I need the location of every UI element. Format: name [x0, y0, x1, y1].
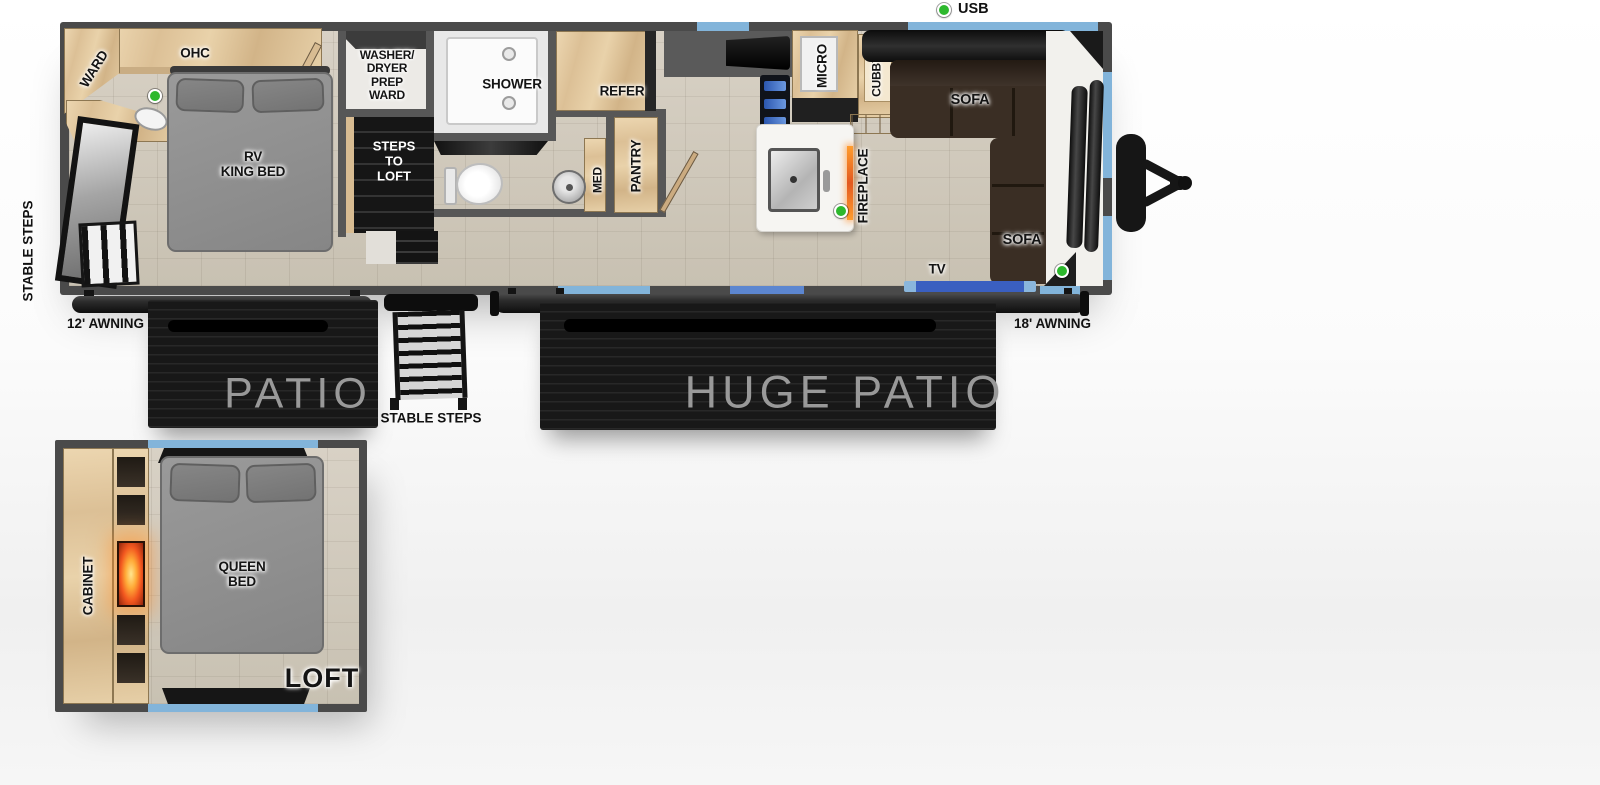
loft-window-bottom: [148, 704, 318, 712]
usb-indicator-icon: [148, 89, 162, 103]
shower-label: SHOWER: [482, 76, 542, 91]
queen-bed-label: QUEEN BED: [218, 559, 265, 589]
range-hood: [726, 36, 790, 70]
sofa-cushion-divider: [1012, 88, 1015, 136]
stable-steps-side-label: STABLE STEPS: [22, 200, 37, 301]
awning-end-cap: [490, 291, 499, 316]
king-bed-label: RV KING BED: [221, 149, 285, 179]
stable-steps-center-label: STABLE STEPS: [380, 412, 481, 427]
micro-label: MICRO: [814, 44, 829, 88]
med-label: MED: [591, 167, 604, 193]
island-sink-drain: [790, 176, 797, 183]
sofa-cushion-divider: [992, 184, 1044, 187]
loft-cabinet-shelves: [113, 448, 149, 704]
huge-patio-lintel: [564, 319, 936, 332]
micro-base: [792, 98, 858, 122]
washer-room-counter: [346, 31, 426, 49]
refer-side-panel: [645, 31, 656, 111]
cooktop-burner: [764, 81, 786, 91]
shelf-cell: [117, 653, 145, 683]
shelf-cell: [117, 457, 145, 487]
cabinet-label: CABINET: [80, 557, 95, 616]
shelf-cell: [117, 615, 145, 645]
island-faucet: [823, 170, 830, 192]
right-window-upper: [1103, 72, 1112, 178]
loft-label: LOFT: [285, 663, 359, 693]
wall: [606, 117, 614, 213]
king-bed-pillow-left: [175, 78, 244, 113]
queen-bed-pillow-left: [169, 463, 240, 503]
shower-drain: [502, 47, 516, 61]
window-valance: [862, 30, 1070, 62]
loft-window-top: [148, 440, 318, 448]
wall: [338, 31, 346, 237]
steps-to-loft-label: STEPS TO LOFT: [373, 140, 416, 185]
patio-lintel: [168, 320, 328, 332]
shower-glass: [434, 141, 548, 155]
huge-patio-label: HUGE PATIO: [685, 370, 1006, 415]
wall: [346, 109, 434, 117]
top-window-kitchen: [697, 22, 749, 31]
door-railing: [78, 221, 139, 288]
sofa-label-top: SOFA: [951, 92, 990, 108]
cooktop-burner: [764, 99, 786, 109]
king-bed-pillow-right: [251, 78, 324, 113]
ohc-label: OHC: [180, 45, 209, 60]
awning-end-cap: [1080, 291, 1089, 316]
fireplace-label: FIREPLACE: [855, 149, 870, 224]
stable-steps-ladder: [384, 294, 478, 412]
refer-label: REFER: [600, 83, 645, 98]
awning-right-label: 18' AWNING: [1014, 317, 1091, 332]
usb-indicator-icon: [834, 204, 848, 218]
usb-indicator-icon: [1055, 264, 1069, 278]
patio-label: PATIO: [224, 373, 372, 416]
usb-indicator-icon: [937, 3, 951, 17]
wall: [426, 133, 556, 141]
steps-platform: [384, 294, 478, 311]
pantry-label: PANTRY: [628, 140, 643, 193]
toilet-tank: [444, 167, 457, 205]
hitch-icon: [1112, 130, 1192, 236]
queen-bed-pillow-right: [245, 463, 316, 503]
usb-legend-label: USB: [958, 2, 989, 18]
floorplan-canvas: USB OHC WARD RV KING BED WASHER/ DRYER P…: [0, 0, 1600, 785]
refer-cabinet: [556, 31, 656, 111]
steps-lower: [396, 231, 438, 264]
tv-strip: [904, 281, 1036, 292]
sofa-label-right: SOFA: [1003, 232, 1042, 248]
sofa-backrest: [890, 60, 1072, 86]
wall: [548, 31, 556, 141]
right-window-lower: [1103, 216, 1112, 280]
steps-foot: [390, 398, 399, 410]
bath-sink-drain: [566, 184, 573, 191]
shelf-cell: [117, 495, 145, 525]
shower-drain: [502, 96, 516, 110]
fireplace-glow: [117, 541, 145, 607]
steps-treads: [392, 310, 467, 400]
awning-left-label: 12' AWNING: [67, 317, 144, 332]
washer-dryer-label: WASHER/ DRYER PREP WARD: [360, 49, 415, 103]
tv-label: TV: [929, 261, 946, 276]
steps-foot: [458, 398, 467, 410]
